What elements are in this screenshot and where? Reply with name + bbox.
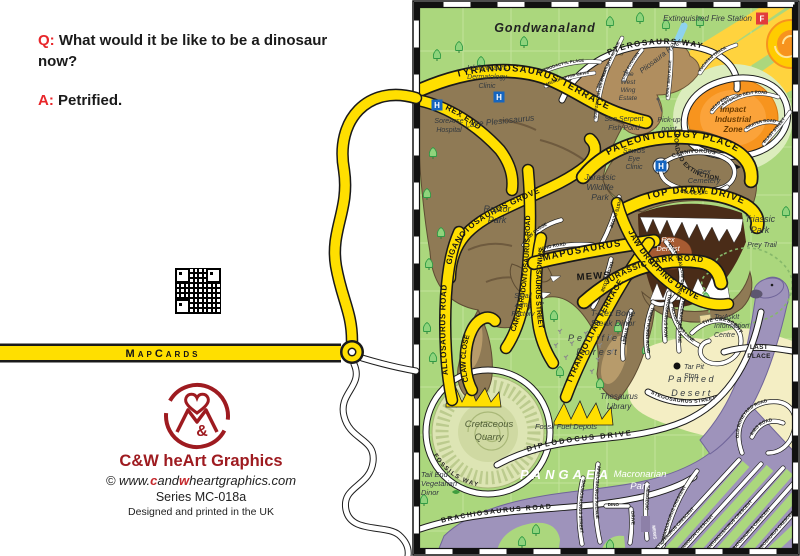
jurassic-wildlife-3: Park (591, 192, 609, 202)
qr-code (175, 268, 221, 314)
ichthyosaurs-2: Dermatology (467, 74, 507, 81)
west-wing-4: Estate (619, 95, 638, 102)
site-post: heartgraphics.com (189, 473, 296, 488)
west-wing-3: Wing (621, 87, 636, 94)
raptor-park-1: Raptor (483, 204, 511, 214)
prey-trail-label: Prey Trail (747, 242, 777, 249)
site-mid: and (157, 473, 179, 488)
pickup-2: point (660, 126, 677, 133)
tar-pit-dot (674, 363, 681, 370)
banner-title: MapCards (126, 348, 201, 360)
rex-cemetery-1: Rex (697, 167, 711, 176)
qr-finder (175, 299, 190, 314)
logo-ampersand: & (196, 423, 208, 440)
tryaskit-1: TryAskIt (714, 314, 740, 321)
tail-end-2: Vegetarian (421, 479, 457, 488)
road-last: LAST (750, 344, 768, 351)
trex-steak-1: T-Rex Bone (591, 308, 636, 318)
triassic-park-1: Triassic (745, 214, 776, 224)
macronarian-1: Macronarian (614, 469, 667, 480)
road-place: PLACE (747, 353, 771, 360)
brand-logo: & (161, 381, 233, 453)
thesaurus-2: Library (607, 402, 632, 411)
site-pre: © www. (106, 473, 150, 488)
mapcard-screenshot: { "card": { "q_prefix": "Q:", "question"… (0, 0, 800, 556)
hospital-letter: H (496, 93, 502, 102)
rex-cemetery-2: Cemetery (688, 176, 722, 185)
road-dino: DINO (608, 502, 620, 507)
sauropod-eye (771, 284, 774, 287)
roundabout-hole (349, 349, 355, 355)
west-wing-1: The (622, 71, 634, 78)
tail-end-1: Tail End (421, 470, 449, 479)
rex-dentist-1: Rex (661, 235, 675, 244)
tryaskit-3: Centre (714, 332, 735, 339)
impact-1: Impact (720, 105, 746, 114)
jurassic-wildlife-2: Wildlife (586, 182, 614, 192)
fire-station-label: Extinguished Fire Station (663, 14, 752, 23)
impact-3: Zone (722, 125, 743, 134)
small-arms-1: Small (514, 293, 532, 300)
logo-circle (161, 381, 233, 453)
site-w: w (179, 473, 189, 488)
qr-finder (175, 268, 190, 283)
west-wing-2: West (621, 79, 637, 86)
website: © www.candwheartgraphics.com (56, 473, 346, 488)
painted-2: Desert (671, 388, 713, 398)
road-dino-drive: DRIVE (630, 511, 635, 525)
printed-note: Designed and printed in the UK (56, 506, 346, 518)
sorearse-2: Hospital (436, 127, 462, 134)
sorearse-1: SoreArse (434, 118, 463, 125)
jurassic-wildlife-1: Jurassic (583, 172, 616, 182)
sawus-3: Clinic (625, 164, 643, 171)
petrified-2: Forest (576, 347, 620, 357)
pangaea-label: PANGAEA (520, 467, 612, 482)
painted-1: Painted (668, 374, 716, 384)
qr-finder (206, 268, 221, 283)
mesozoic-mews-tag (641, 516, 650, 532)
joke-question: Q: What would it be like to be a dinosau… (38, 30, 343, 72)
answer-prefix: A: (38, 92, 54, 109)
sawus-1: SawUs (623, 148, 646, 155)
map-title: Gondwanaland (494, 21, 596, 35)
macronarian-2: Park (630, 481, 651, 492)
trex-steak-2: Steak Dinor (591, 318, 637, 328)
fossil-fuel-label: Fossil Fuel Depots (535, 422, 597, 431)
answer-text: Petrified. (58, 92, 122, 109)
question-text: What would it be like to be a dinosaur n… (38, 32, 327, 70)
fire-station-letter: F (760, 15, 765, 24)
tail-end-3: Dinor (421, 488, 439, 497)
cretaceous-1: Cretaceous (465, 419, 514, 430)
hospital-letter: H (434, 101, 440, 110)
raptor-park-2: Park (488, 215, 507, 225)
small-arms-3: Factory (511, 311, 535, 318)
series-number: Series MC-018a (56, 490, 346, 504)
cretaceous-2: Quarry (474, 432, 504, 443)
tar-pit-1: Tar Pit (684, 364, 705, 371)
brand-name: C&W heArt Graphics (56, 452, 346, 471)
impact-2: Industrial (715, 115, 752, 124)
tryaskit-2: Information (714, 323, 749, 330)
sawus-2: Eye (628, 156, 640, 163)
rex-dentist-2: Dentist (656, 244, 680, 253)
thesaurus-1: Thesaurus (600, 392, 638, 401)
small-arms-2: Arms (514, 302, 532, 309)
petrified-1: Petrified (568, 333, 628, 343)
fish-pond-1: Sea Serpent (605, 116, 645, 123)
joke-answer: A: Petrified. (38, 92, 343, 109)
fish-pond-2: Fish Pond (608, 125, 641, 132)
map-content: TYRANNOSAURUS TERRACE REX END GIGANOTOSA… (417, 0, 800, 556)
question-prefix: Q: (38, 32, 55, 49)
pickup-dot (657, 98, 660, 101)
triassic-park-2: Park (751, 225, 770, 235)
hospital-letter: H (658, 162, 664, 171)
pickup-1: Pick-up (657, 117, 680, 124)
ichthyosaurs-3: Clinic (478, 83, 496, 90)
ichthyosaurs-1: Ichthyosaurs (467, 65, 507, 72)
